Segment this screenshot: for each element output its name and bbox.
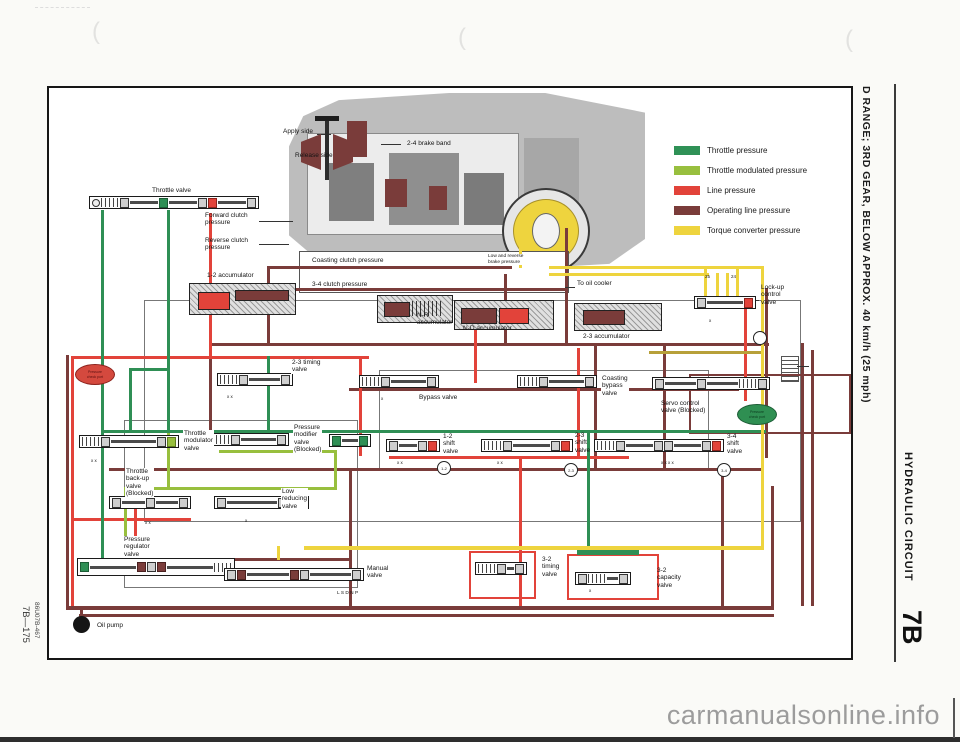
valve-part: [167, 437, 176, 447]
valve-part: [597, 441, 615, 450]
valve-part: [674, 444, 701, 447]
valve-part: [561, 441, 570, 451]
shift-solenoid-icon: [753, 331, 767, 345]
pipe-segment: [801, 343, 804, 606]
shift-solenoid-icon: 1-2: [437, 461, 451, 475]
legend-swatch: [674, 146, 700, 155]
legend-swatch: [674, 206, 700, 215]
legend: Throttle pressureThrottle modulated pres…: [674, 140, 879, 240]
clutch-pack-detail: [429, 186, 447, 210]
valve-part: [122, 501, 145, 504]
diagram-label: 1-2 shift valve: [443, 433, 458, 455]
transmission-detail: [464, 173, 504, 225]
diagram-label: x: [381, 396, 383, 401]
valve-part: [702, 441, 711, 451]
pipe-segment: [771, 486, 774, 610]
valve-part: [120, 198, 129, 208]
diagram-label: 2-4 brake band: [407, 140, 451, 147]
valve-part: [90, 566, 136, 569]
coasting-bypass-valve-glyph: [517, 375, 597, 388]
valve-part: [664, 441, 673, 451]
valve-part: [167, 566, 213, 569]
diagram-label: x x: [91, 458, 97, 463]
diagram-label: Forward clutch pressure: [205, 212, 248, 227]
brake-band-servo: [299, 116, 355, 180]
pipe-segment: [726, 273, 729, 298]
oil-pump-icon: [73, 616, 90, 633]
margin-rule: [894, 84, 896, 662]
valve-part: [249, 378, 280, 381]
valve-part: [227, 570, 236, 580]
valve-part: [352, 570, 361, 580]
valve-part: [220, 375, 238, 384]
diagram-label: x: [245, 518, 247, 523]
valve-part: [391, 380, 426, 383]
pressure-modifier-spool-glyph: [329, 434, 371, 447]
valve-part: [619, 574, 628, 584]
servo-control-valve-glyph: [652, 377, 770, 390]
pipe-segment: [736, 266, 739, 298]
pipe-segment: [101, 210, 104, 570]
valve-part: [82, 437, 100, 446]
diagram-label: x x: [397, 460, 403, 465]
pipe-segment: [797, 366, 809, 367]
valve-part: [212, 435, 230, 444]
valve-part: [665, 382, 696, 385]
valve-part: [146, 498, 155, 508]
pipe-segment: [129, 368, 132, 433]
diagram-label: 3-4 shift valve: [727, 433, 742, 455]
diagram-label: 24: [731, 274, 736, 279]
diagram-label: 3-2 capacity valve: [657, 567, 681, 589]
valve-part: [247, 573, 289, 576]
valve-part: [169, 201, 197, 204]
valve-part: [578, 574, 587, 584]
page-caption: D RANGE; 3RD GEAR, BELOW APPROX. 40 km/h…: [860, 86, 872, 403]
throttle-backup-valve-glyph: [109, 496, 191, 509]
pressure-check-port-badge: Pressure check port: [737, 404, 777, 425]
pipe-segment: [71, 356, 74, 606]
diagram-label: Servo control valve (Blocked): [661, 400, 705, 415]
valve-part: [130, 201, 158, 204]
pipe-segment: [519, 458, 522, 606]
2-3-accumulator-glyph: [574, 303, 662, 331]
pipe-segment: [389, 456, 629, 459]
page-bottom-edge: [0, 737, 960, 742]
legend-item: Line pressure: [674, 180, 879, 200]
valve-part: [231, 435, 240, 445]
accumulator-piston: [198, 292, 230, 310]
pipe-segment: [71, 518, 191, 521]
diagram-label: 3-4 clutch pressure: [311, 281, 368, 288]
valve-part: [399, 444, 417, 447]
valve-part: [218, 201, 246, 204]
valve-part: [147, 562, 156, 572]
diagram-label: L S D N P: [337, 591, 358, 597]
valve-part: [198, 198, 207, 208]
valve-part: [758, 379, 767, 389]
pipe-segment: [565, 228, 568, 343]
diagram-label: 1-2 accumulator: [207, 272, 254, 279]
valve-part: [92, 199, 100, 207]
3-2-capacity-valve-glyph: [575, 572, 631, 585]
diagram-label: x: [709, 318, 711, 323]
valve-part: [342, 439, 358, 442]
servo-stem: [325, 116, 329, 180]
valve-part: [247, 198, 256, 208]
enclosure: [469, 551, 536, 599]
page-number: 7B—175: [20, 606, 31, 643]
pipe-segment: [549, 266, 761, 269]
valve-part: [585, 377, 594, 387]
pipe-segment: [349, 471, 352, 606]
1-2-shift-valve-glyph: [386, 439, 440, 452]
diagram-label: Manual valve: [367, 565, 388, 580]
valve-part: [588, 574, 606, 583]
valve-part: [208, 198, 217, 208]
valve-part: [654, 441, 663, 451]
legend-swatch: [674, 166, 700, 175]
valve-part: [697, 379, 706, 389]
pressure-regulator-valve-glyph: [77, 558, 235, 576]
legend-item: Operating line pressure: [674, 200, 879, 220]
diagram-label: 2-3 timing valve: [291, 359, 322, 374]
valve-part: [362, 377, 380, 386]
legend-swatch: [674, 186, 700, 195]
pipe-segment: [267, 266, 512, 269]
pipe-segment: [259, 244, 289, 245]
diagram-label: Throttle back-up valve (Blocked): [125, 468, 154, 498]
pipe-segment: [704, 266, 707, 298]
scan-artifact-line: [953, 698, 955, 738]
valve-part: [381, 377, 390, 387]
valve-part: [156, 501, 179, 504]
diagram-label: x x x x: [661, 460, 674, 465]
diagram-label: x x: [145, 520, 151, 525]
valve-part: [101, 198, 119, 207]
valve-part: [237, 570, 246, 580]
valve-part: [427, 377, 436, 387]
diagram-label: Low reducing valve: [281, 488, 308, 510]
valve-part: [551, 441, 560, 451]
valve-part: [310, 573, 352, 576]
bypass-valve-glyph: [359, 375, 439, 388]
scanned-manual-page: ( ( ( 7B—175 86U07B-467 T: [0, 0, 960, 742]
pipe-segment: [304, 546, 764, 550]
legend-label: Line pressure: [707, 186, 755, 195]
torque-converter-hub: [532, 213, 560, 249]
scan-artifact-paren: (: [845, 26, 853, 54]
valve-part: [428, 441, 437, 451]
valve-part: [217, 498, 226, 508]
legend-item: Throttle modulated pressure: [674, 160, 879, 180]
pipe-segment: [71, 356, 369, 359]
accumulator-piston: [499, 308, 529, 324]
diagram-label: Bypass valve: [419, 394, 457, 401]
valve-part: [484, 441, 502, 450]
hydraulic-circuit-diagram: Throttle pressureThrottle modulated pres…: [47, 86, 853, 660]
diagram-label: Pressure regulator valve: [123, 536, 151, 558]
diagram-label: x: [589, 588, 591, 593]
valve-part: [507, 567, 514, 570]
valve-part: [607, 577, 618, 580]
diagram-label: Reverse clutch pressure: [205, 237, 248, 252]
diagram-label: To oil cooler: [577, 280, 612, 287]
valve-part: [549, 380, 584, 383]
valve-part: [655, 379, 664, 389]
pipe-segment: [209, 343, 769, 346]
section-number: 7B: [896, 610, 927, 645]
legend-label: Operating line pressure: [707, 206, 790, 215]
diagram-label: Lock-up control valve: [761, 284, 784, 306]
shift-solenoid-icon: 2-3: [564, 463, 578, 477]
throttle-valve-glyph: [89, 196, 259, 209]
valve-part: [697, 298, 706, 308]
2-3-shift-valve-glyph: [481, 439, 573, 452]
pipe-segment: [381, 144, 401, 145]
pipe-segment: [167, 210, 170, 433]
pipe-segment: [721, 471, 724, 606]
legend-label: Throttle modulated pressure: [707, 166, 807, 175]
band-segment: [333, 134, 353, 170]
pipe-segment: [129, 368, 169, 371]
pipe-segment: [79, 614, 774, 617]
valve-part: [112, 498, 121, 508]
valve-part: [497, 564, 506, 574]
valve-part: [539, 377, 548, 387]
valve-part: [101, 437, 110, 447]
pipe-segment: [577, 550, 639, 555]
pipe-segment: [565, 287, 575, 288]
pipe-segment: [259, 221, 293, 222]
valve-part: [179, 498, 188, 508]
diagram-label: x x: [227, 394, 233, 399]
diagram-label: Throttle valve: [152, 187, 191, 194]
pressure-modifier-valve-glyph: [209, 433, 289, 446]
diagram-label: N-D accumulator: [463, 325, 512, 332]
pipe-segment: [549, 273, 709, 276]
legend-label: Throttle pressure: [707, 146, 767, 155]
scan-artifact-paren: (: [458, 24, 466, 52]
pressure-check-port-badge: Pressure check port: [75, 364, 115, 385]
clutch-pack-detail: [385, 179, 407, 207]
diagram-label: Release side: [295, 152, 333, 159]
figure-code: 86U07B-467: [33, 602, 40, 639]
valve-part: [239, 375, 248, 385]
diagram-label: 2-3 shift valve: [575, 432, 590, 454]
diagram-label: 3-2 timing valve: [541, 556, 560, 578]
diagram-label: x x: [497, 460, 503, 465]
pipe-segment: [649, 351, 761, 354]
diagram-label: Pressure modifier valve (Blocked): [293, 424, 322, 454]
valve-part: [389, 441, 398, 451]
diagram-label: Coasting bypass valve: [601, 375, 629, 397]
valve-part: [137, 562, 146, 572]
1-2-accumulator-glyph: [189, 283, 296, 315]
scan-artifact-paren: (: [92, 18, 100, 46]
valve-part: [503, 441, 512, 451]
diagram-label: Coasting clutch pressure: [311, 257, 385, 264]
accumulator-piston: [461, 308, 497, 324]
servo-cap: [315, 116, 339, 121]
watermark: carmanualsonline.info: [560, 700, 940, 731]
valve-part: [739, 379, 757, 388]
valve-part: [111, 440, 156, 443]
accumulator-piston: [583, 310, 625, 325]
valve-part: [478, 564, 496, 573]
throttle-modulator-valve-glyph: [79, 435, 179, 448]
shift-solenoid-icon: 3-4: [717, 463, 731, 477]
valve-part: [241, 438, 276, 441]
accumulator-piston: [235, 290, 289, 301]
2-3-timing-valve-glyph: [217, 373, 293, 386]
valve-part: [616, 441, 625, 451]
3-4-shift-valve-glyph: [594, 439, 724, 452]
valve-part: [300, 570, 309, 580]
valve-part: [332, 436, 341, 446]
legend-swatch: [674, 226, 700, 235]
valve-part: [418, 441, 427, 451]
valve-part: [157, 562, 166, 572]
valve-part: [712, 441, 721, 451]
valve-part: [359, 436, 368, 446]
valve-part: [159, 198, 168, 208]
valve-part: [513, 444, 550, 447]
diagram-label: 2-3 accumulator: [583, 333, 630, 340]
valve-part: [707, 382, 738, 385]
legend-label: Torque converter pressure: [707, 226, 800, 235]
diagram-label: Oil pump: [97, 622, 123, 629]
pipe-segment: [277, 546, 280, 560]
valve-part: [80, 562, 89, 572]
valve-part: [744, 298, 753, 308]
valve-part: [515, 564, 524, 574]
valve-part: [707, 301, 743, 304]
valve-part: [626, 444, 653, 447]
pipe-segment: [267, 356, 270, 431]
accumulator-piston: [384, 302, 410, 317]
pipe-segment: [66, 355, 69, 608]
valve-part: [277, 435, 286, 445]
valve-part: [281, 375, 290, 385]
legend-item: Torque converter pressure: [674, 220, 879, 240]
diagram-label: Apply side: [283, 128, 313, 135]
valve-part: [227, 501, 277, 504]
3-2-timing-valve-glyph: [475, 562, 527, 575]
legend-item: Throttle pressure: [674, 140, 879, 160]
valve-part: [520, 377, 538, 386]
valve-part: [290, 570, 299, 580]
pipe-segment: [811, 350, 814, 606]
pipe-segment: [716, 273, 719, 298]
diagram-label: Low and reverse brake pressure: [487, 254, 524, 265]
scan-artifact-dash: [35, 7, 90, 8]
lock-up-control-valve-glyph: [694, 296, 756, 309]
diagram-label: N-R accumulator: [417, 312, 452, 327]
pipe-segment: [66, 606, 774, 610]
section-title: HYDRAULIC CIRCUIT: [902, 452, 914, 581]
valve-part: [157, 437, 166, 447]
diagram-label: 25: [705, 274, 710, 279]
pipe-segment: [334, 450, 337, 490]
diagram-label: Throttle modulator valve: [183, 430, 214, 452]
manual-valve-glyph: [224, 568, 364, 581]
